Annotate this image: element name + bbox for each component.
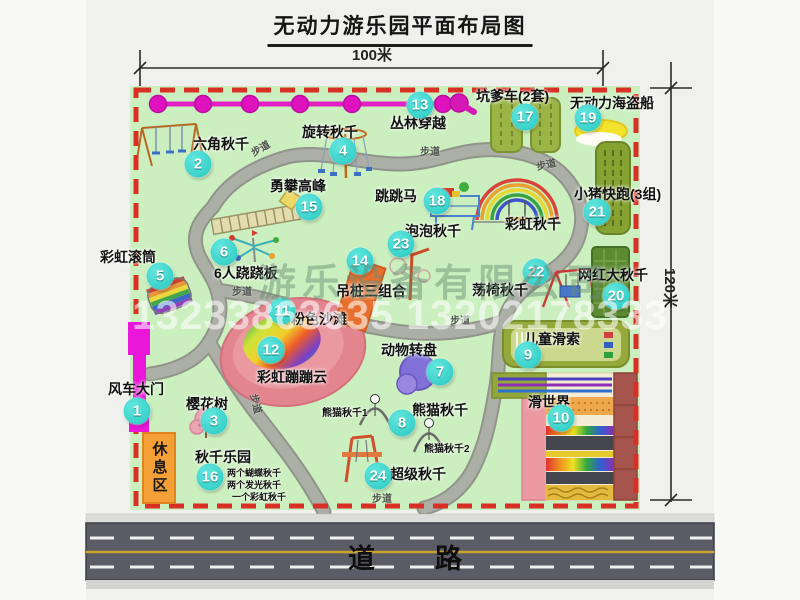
attraction-label-6: 6人跷跷板: [214, 263, 278, 283]
page-title: 无动力游乐园平面布局图: [268, 10, 533, 47]
walkway-label: 步道: [232, 283, 252, 298]
attraction-label-14: 吊桩三组合: [336, 281, 406, 301]
attraction-label-5: 彩虹滚筒: [100, 247, 156, 267]
attraction-badge-11: 11: [269, 298, 296, 325]
attraction-badge-19: 19: [575, 105, 602, 132]
panda-swing-1-label: 熊猫秋千1: [322, 404, 368, 419]
panda-swing-2-label: 熊猫秋千2: [424, 440, 470, 455]
attraction-badge-16: 16: [197, 464, 224, 491]
attraction-badge-17: 17: [512, 104, 539, 131]
park-layout-map: 无动力游乐园平面布局图 100米 120米 休息区 步道 步道 步道 步道 步道…: [0, 0, 800, 600]
attraction-badge-7: 7: [427, 359, 454, 386]
attraction-label-11: 粉色沙滩: [291, 309, 347, 329]
road-label: 道路: [348, 537, 522, 576]
width-dimension-label: 100米: [352, 44, 392, 65]
height-dimension-label: 120米: [660, 268, 681, 308]
attraction-badge-24: 24: [365, 463, 392, 490]
walkway-label: 步道: [372, 490, 392, 505]
attraction-badge-22: 22: [523, 259, 550, 286]
attraction-label-18: 跳跳马: [375, 186, 417, 206]
attraction-badge-21: 21: [584, 199, 611, 226]
walkway-label: 步道: [450, 312, 470, 327]
attraction-badge-23: 23: [388, 231, 415, 258]
attraction-label-12: 彩虹蹦蹦云: [257, 367, 327, 387]
attraction-label-15: 勇攀高峰: [270, 176, 326, 196]
attraction-badge-13: 13: [407, 92, 434, 119]
attraction-badge-2: 2: [185, 151, 212, 178]
rest-area: 休息区: [142, 432, 176, 504]
attraction-label-24: 超级秋千: [390, 464, 446, 484]
attraction-badge-5: 5: [147, 263, 174, 290]
attraction-badge-9: 9: [515, 342, 542, 369]
attraction-badge-10: 10: [548, 405, 575, 432]
attraction-label-8: 熊猫秋千: [412, 400, 468, 420]
attraction-badge-3: 3: [201, 408, 228, 435]
attraction-label-22: 荡椅秋千: [472, 280, 528, 300]
swing-park-note-3: 一个彩虹秋千: [232, 490, 286, 503]
attraction-badge-8: 8: [389, 410, 416, 437]
attraction-badge-12: 12: [258, 337, 285, 364]
attraction-badge-14: 14: [347, 248, 374, 275]
attraction-badge-18: 18: [424, 188, 451, 215]
attraction-badge-6: 6: [211, 239, 238, 266]
attraction-label-1: 风车大门: [108, 379, 164, 399]
attraction-badge-4: 4: [330, 138, 357, 165]
rainbow-swing-label: 彩虹秋千: [505, 214, 561, 234]
attraction-badge-1: 1: [124, 398, 151, 425]
walkway-label: 步道: [420, 143, 440, 158]
attraction-badge-15: 15: [296, 194, 323, 221]
attraction-badge-20: 20: [603, 283, 630, 310]
attraction-label-17: 坑爹车(2套): [476, 86, 549, 106]
attraction-label-7: 动物转盘: [381, 340, 437, 360]
